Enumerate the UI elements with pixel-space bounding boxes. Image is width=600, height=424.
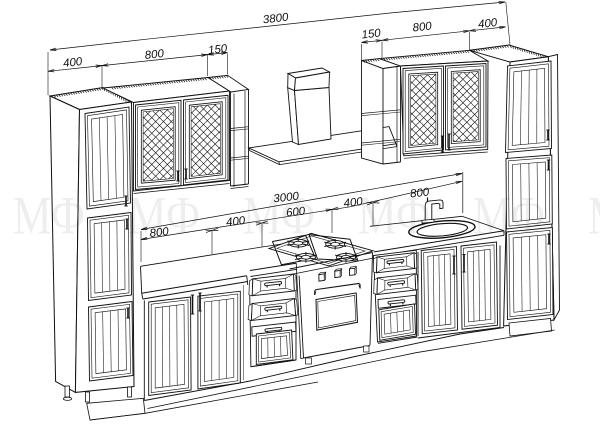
svg-text:МФ: МФ [588, 186, 600, 246]
svg-text:400: 400 [477, 17, 498, 31]
svg-text:МФ: МФ [13, 186, 85, 246]
svg-text:400: 400 [62, 56, 83, 70]
svg-text:МФ: МФ [243, 186, 315, 246]
svg-text:МФ: МФ [358, 186, 430, 246]
svg-text:МФ: МФ [128, 186, 200, 246]
svg-text:800: 800 [412, 20, 433, 34]
svg-text:800: 800 [144, 48, 165, 62]
svg-text:150: 150 [361, 27, 382, 41]
svg-text:МФ: МФ [473, 186, 545, 246]
svg-text:150: 150 [207, 43, 228, 57]
